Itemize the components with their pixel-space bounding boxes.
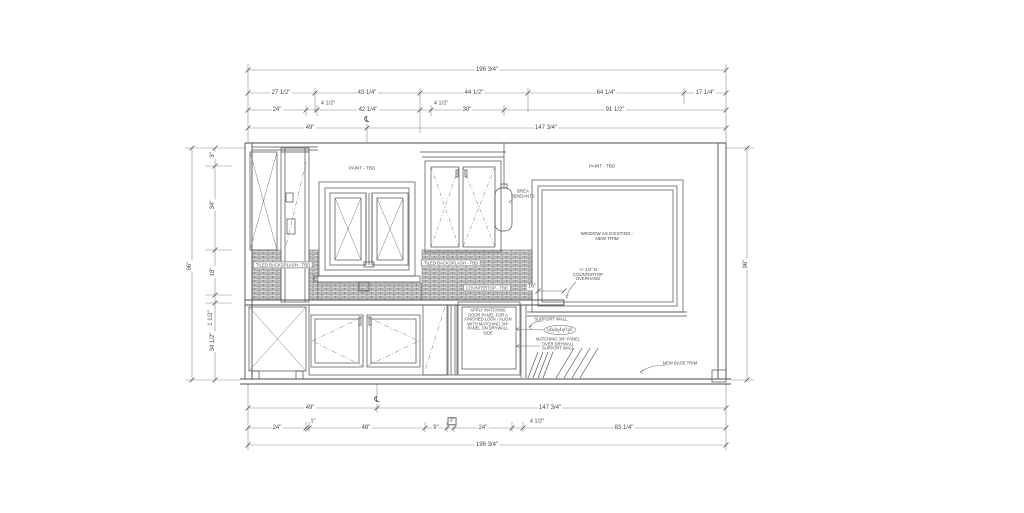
upper-cabinet-center: [420, 152, 506, 252]
dim-top-r3-4: 4 1/2": [433, 101, 449, 107]
backsplash-label-left: TILED BACKSPLASH - TBD: [253, 261, 313, 268]
paint-label-left: PAINT - TBD: [349, 165, 375, 170]
dim-top-r3-5: 30": [462, 107, 473, 113]
dim-left-overall: 96": [187, 261, 193, 272]
dim-top-r4-1: 49": [305, 125, 316, 131]
dim-left-1: 3": [210, 151, 216, 158]
dim-top-r2-5: 17 1/4": [695, 90, 716, 96]
door-panel-note: APPLY MATCHING DOOR PANEL FOR A FINISHED…: [464, 309, 511, 336]
dim-bot-r2-8: 83 1/4": [614, 425, 635, 431]
dim-top-r2-3: 44 1/2": [464, 90, 485, 96]
dim-bot-r2-4: 9": [432, 425, 439, 431]
dim-bot-r2-6: 24": [478, 425, 489, 431]
support-wall-hatch: [528, 326, 598, 379]
window-existing-label: WINDOW AS EXISTING - NEW TRIM: [581, 231, 634, 241]
window-center: [314, 182, 420, 291]
tiled-backsplash: [252, 250, 532, 300]
pendant-light: [495, 143, 516, 231]
backsplash-label-center: TILED BACKSPLASH - TBD: [421, 259, 481, 266]
dim-top-r3-2: 4 1/2": [320, 101, 336, 107]
paint-label-right: PAINT - TBD: [589, 163, 615, 168]
centerline-symbol-bottom: ℄: [374, 396, 380, 404]
dim-top-r3-3: 42 1/4": [358, 107, 379, 113]
dim-top-r3-6: 91 1/2": [605, 107, 626, 113]
dim-bot-r2-2: 1": [309, 419, 316, 425]
overhang-dim-label: 16": [527, 284, 537, 290]
dim-left-4: 1 1/2": [208, 309, 214, 326]
dim-left-5: 34 1/2": [210, 332, 216, 353]
elevation-linework: [0, 0, 1024, 513]
dim-bot-r2-3: 48": [361, 425, 372, 431]
dim-top-r2-4: 64 1/4": [596, 90, 617, 96]
dim-top-r3-1: 24": [272, 107, 283, 113]
dim-right-overall: 96": [743, 259, 749, 270]
kitchen-elevation-drawing: 196 3/4" 27 1/2" 43 1/4" 44 1/2" 64 1/4"…: [0, 0, 1024, 513]
pendant-label: BREA PENDANTS: [511, 189, 534, 198]
dim-top-r2-1: 27 1/2": [271, 90, 292, 96]
dim-bot-r1-2: 147 3/4": [538, 405, 562, 411]
dim-bot-r2-7: 4 1/2": [529, 419, 545, 425]
dim-top-r4-2: 147 3/4": [534, 125, 558, 131]
support-wall-label: SUPPORT WALL: [534, 318, 567, 323]
overhang-note: +/- 1/2" D COUNTERTOP OVERHANG: [573, 268, 603, 282]
dim-left-2: 34": [210, 200, 216, 211]
dim-bot-r2-1: 24": [272, 425, 283, 431]
dim-bot-total: 196 3/4": [475, 442, 499, 448]
countertop-label: COUNTERTOP - TBD: [463, 284, 511, 291]
matching-panel-note: MATCHING 3/4" PANEL OVER DRYWALL SUPPORT…: [536, 337, 580, 351]
dim-top-r2-2: 43 1/4": [357, 90, 378, 96]
centerline-symbol-top: ℄: [364, 116, 370, 124]
dim-top-total: 196 3/4": [475, 67, 499, 73]
stud-note: 2 X6 @ 16" O.C.: [546, 328, 573, 332]
base-trim-label: NEW BASE TRIM: [663, 362, 697, 367]
window-right: [527, 180, 687, 316]
dim-bot-r2-5: 3": [447, 417, 456, 425]
dim-left-3: 18": [210, 267, 216, 278]
dim-bot-r1-1: 49": [305, 405, 316, 411]
